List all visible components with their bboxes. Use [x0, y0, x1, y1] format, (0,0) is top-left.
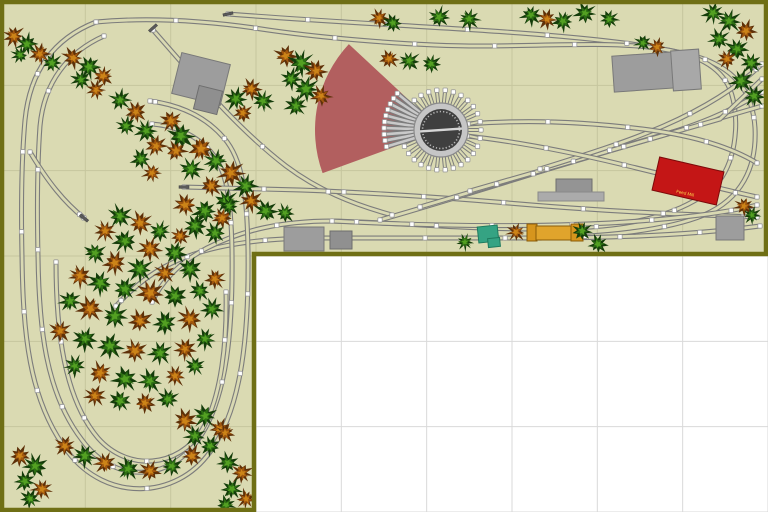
buffer-stop[interactable] — [179, 186, 189, 189]
joint-dot — [378, 218, 382, 222]
joint-dot — [224, 290, 228, 294]
joint-dot — [492, 44, 496, 48]
joint-dot — [471, 104, 475, 108]
joint-dot — [625, 41, 629, 45]
joint-dot — [419, 93, 423, 97]
joint-dot — [386, 107, 390, 111]
joint-dot — [119, 298, 123, 302]
joint-dot — [382, 126, 386, 130]
joint-dot — [546, 120, 550, 124]
joint-dot — [571, 159, 575, 163]
joint-dot — [229, 221, 233, 225]
joint-dot — [222, 136, 226, 140]
joint-dot — [263, 238, 267, 242]
joint-dot — [406, 151, 410, 155]
joint-dot — [661, 211, 665, 215]
joint-dot — [412, 98, 416, 102]
joint-dot — [326, 189, 330, 193]
joint-dot — [459, 93, 463, 97]
joint-dot — [475, 112, 479, 116]
joint-dot — [622, 144, 626, 148]
joint-dot — [153, 100, 157, 104]
turntable-stub-center — [384, 128, 415, 129]
joint-dot — [729, 208, 733, 212]
joint-dot — [36, 167, 40, 171]
joint-dot — [468, 189, 472, 193]
joint-dot — [253, 26, 257, 30]
joint-dot — [82, 416, 86, 420]
joint-dot — [545, 167, 549, 171]
joint-dot — [688, 111, 692, 115]
joint-dot — [758, 224, 762, 228]
joint-dot — [728, 156, 732, 160]
joint-dot — [148, 99, 152, 103]
joint-dot — [28, 150, 32, 154]
joint-dot — [174, 18, 178, 22]
joint-dot — [35, 388, 39, 392]
joint-dot — [466, 158, 470, 162]
joint-dot — [544, 146, 548, 150]
building[interactable] — [284, 227, 324, 251]
joint-dot — [704, 139, 708, 143]
joint-dot — [145, 486, 149, 490]
joint-dot — [494, 182, 498, 186]
joint-dot — [581, 207, 585, 211]
building[interactable] — [671, 49, 702, 91]
joint-dot — [618, 235, 622, 239]
joint-dot — [698, 122, 702, 126]
joint-dot — [275, 223, 279, 227]
joint-dot — [262, 187, 266, 191]
building[interactable] — [716, 216, 744, 240]
joint-dot — [501, 200, 505, 204]
turntable[interactable] — [414, 103, 468, 157]
joint-dot — [443, 88, 447, 92]
track-plan-canvas[interactable]: Feed Mill — [0, 0, 768, 512]
joint-dot — [475, 144, 479, 148]
joint-dot — [434, 224, 438, 228]
joint-dot — [703, 57, 707, 61]
joint-dot — [471, 151, 475, 155]
joint-dot — [384, 144, 388, 148]
joint-dot — [238, 371, 242, 375]
joint-dot — [594, 224, 598, 228]
joint-dot — [423, 236, 427, 240]
joint-dot — [260, 144, 264, 148]
joint-dot — [622, 163, 626, 167]
joint-dot — [435, 88, 439, 92]
joint-dot — [382, 132, 386, 136]
joint-dot — [410, 222, 414, 226]
joint-dot — [60, 404, 64, 408]
joint-dot — [760, 77, 764, 81]
joint-dot — [46, 89, 50, 93]
joint-dot — [451, 90, 455, 94]
building[interactable] — [612, 52, 676, 92]
joint-dot — [330, 219, 334, 223]
joint-dot — [391, 96, 395, 100]
joint-dot — [382, 120, 386, 124]
joint-dot — [422, 194, 426, 198]
joint-dot — [478, 119, 482, 123]
joint-dot — [426, 166, 430, 170]
joint-dot — [443, 168, 447, 172]
joint-dot — [755, 203, 759, 207]
joint-dot — [626, 125, 630, 129]
joint-dot — [402, 144, 406, 148]
joint-dot — [531, 172, 535, 176]
building[interactable] — [488, 237, 501, 247]
joint-dot — [466, 98, 470, 102]
joint-dot — [451, 166, 455, 170]
joint-dot — [145, 459, 149, 463]
joint-dot — [607, 148, 611, 152]
joint-dot — [384, 113, 388, 117]
joint-dot — [388, 102, 392, 106]
joint-dot — [244, 212, 248, 216]
joint-dot — [383, 138, 387, 142]
joint-dot — [435, 168, 439, 172]
joint-dot — [229, 300, 233, 304]
joint-dot — [223, 338, 227, 342]
joint-dot — [684, 126, 688, 130]
joint-dot — [35, 72, 39, 76]
building[interactable] — [538, 192, 604, 201]
joint-dot — [733, 191, 737, 195]
building[interactable] — [330, 231, 352, 249]
joint-dot — [755, 195, 759, 199]
joint-dot — [723, 78, 727, 82]
joint-dot — [479, 128, 483, 132]
joint-dot — [220, 380, 224, 384]
joint-dot — [36, 247, 40, 251]
building[interactable] — [536, 226, 572, 240]
joint-dot — [333, 36, 337, 40]
joint-dot — [459, 162, 463, 166]
joint-dot — [342, 190, 346, 194]
joint-dot — [752, 115, 756, 119]
joint-dot — [54, 260, 58, 264]
joint-dot — [94, 20, 98, 24]
joint-dot — [698, 230, 702, 234]
joint-dot — [22, 310, 26, 314]
joint-dot — [662, 224, 666, 228]
joint-dot — [412, 42, 416, 46]
joint-dot — [354, 220, 358, 224]
joint-dot — [246, 292, 250, 296]
joint-dot — [455, 195, 459, 199]
joint-dot — [723, 110, 727, 114]
joint-dot — [478, 136, 482, 140]
joint-dot — [538, 167, 542, 171]
joint-dot — [426, 90, 430, 94]
joint-dot — [21, 150, 25, 154]
joint-dot — [650, 218, 654, 222]
joint-dot — [545, 33, 549, 37]
building[interactable] — [193, 85, 222, 114]
joint-dot — [503, 236, 507, 240]
joint-dot — [199, 249, 203, 253]
joint-dot — [614, 142, 618, 146]
joint-dot — [390, 213, 394, 217]
joint-dot — [19, 230, 23, 234]
joint-dot — [755, 161, 759, 165]
joint-dot — [419, 162, 423, 166]
joint-dot — [102, 34, 106, 38]
track-plan-stage: Feed Mill — [0, 0, 768, 512]
joint-dot — [572, 42, 576, 46]
joint-dot — [306, 17, 310, 21]
joint-dot — [73, 458, 77, 462]
joint-dot — [418, 205, 422, 209]
joint-dot — [672, 208, 676, 212]
joint-dot — [395, 91, 399, 95]
joint-dot — [648, 137, 652, 141]
joint-dot — [40, 327, 44, 331]
joint-dot — [412, 158, 416, 162]
